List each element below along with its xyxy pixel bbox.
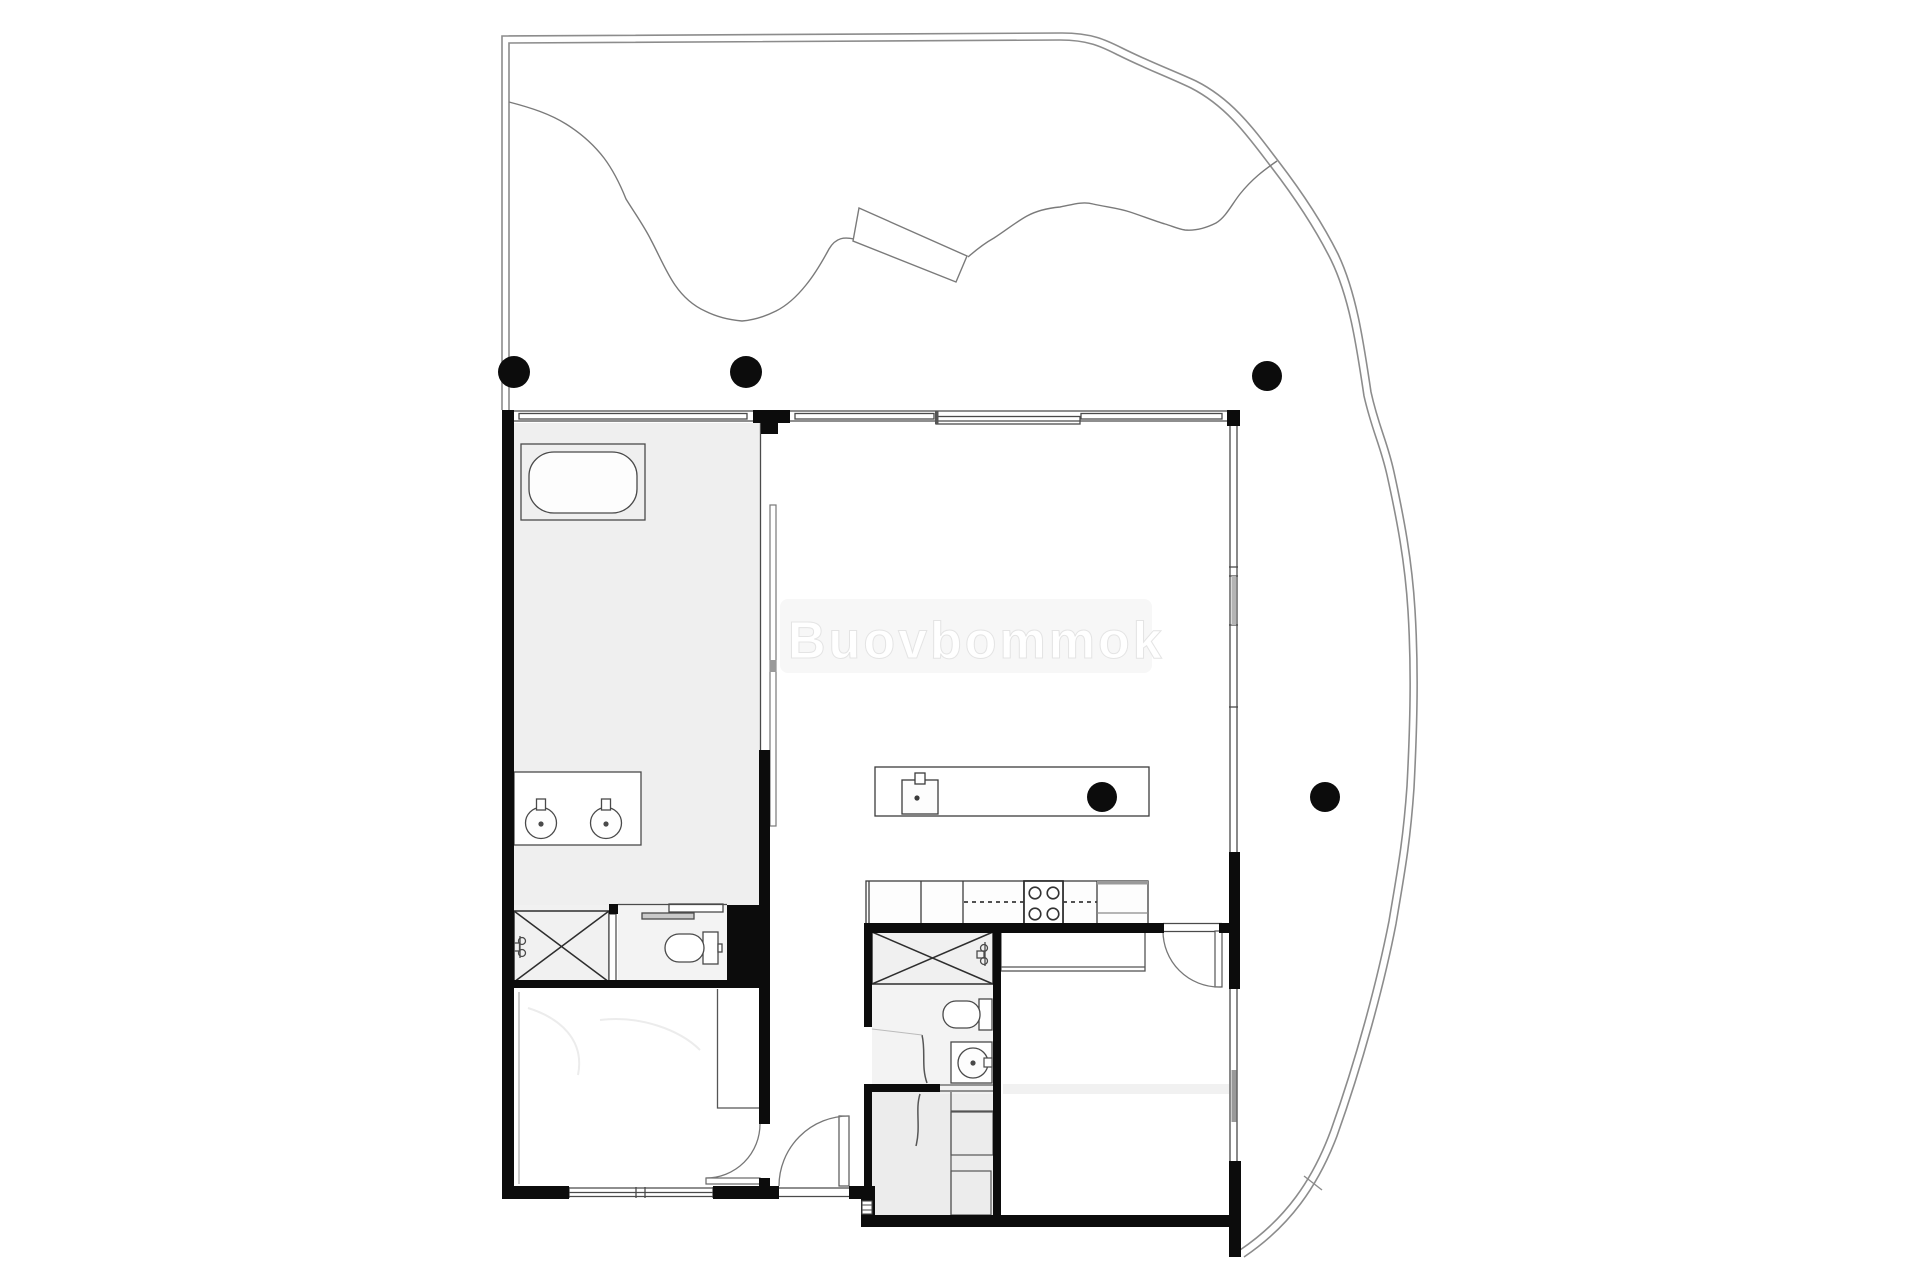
svg-text:Buovbommok: Buovbommok (788, 612, 1165, 670)
